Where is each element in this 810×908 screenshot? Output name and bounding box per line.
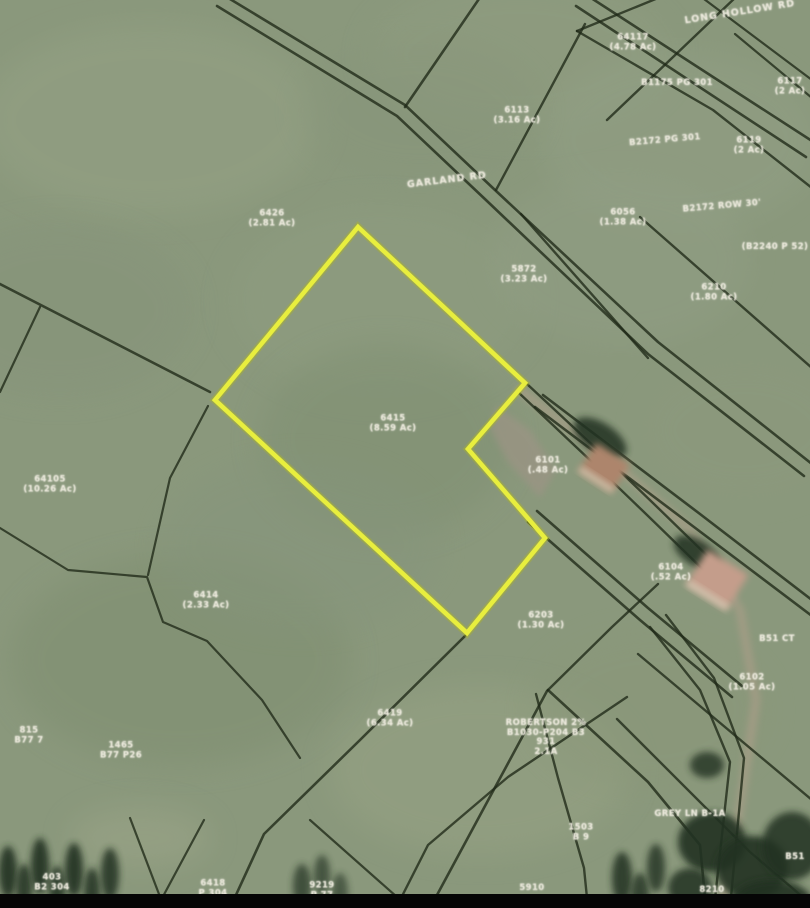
tree-shadow-blob bbox=[101, 848, 119, 900]
field-texture-patch bbox=[160, 460, 440, 630]
tree-shadow-blob bbox=[690, 752, 724, 778]
tree-shadow-blob bbox=[31, 838, 49, 894]
letterbox-bar bbox=[0, 894, 810, 908]
field-texture-patch bbox=[490, 175, 750, 345]
tree-shadow-blob bbox=[65, 843, 83, 897]
field-texture-patch bbox=[530, 630, 770, 790]
parcel-map-canvas bbox=[0, 0, 810, 908]
aerial-parcel-map[interactable]: 6426(2.81 Ac)GARLAND RD5872(3.23 Ac)6411… bbox=[0, 0, 810, 908]
tree-shadow-blob bbox=[314, 855, 330, 895]
tree-shadow-blob bbox=[647, 844, 665, 892]
field-texture-patch bbox=[70, 808, 210, 868]
field-texture-patch bbox=[300, 40, 540, 180]
